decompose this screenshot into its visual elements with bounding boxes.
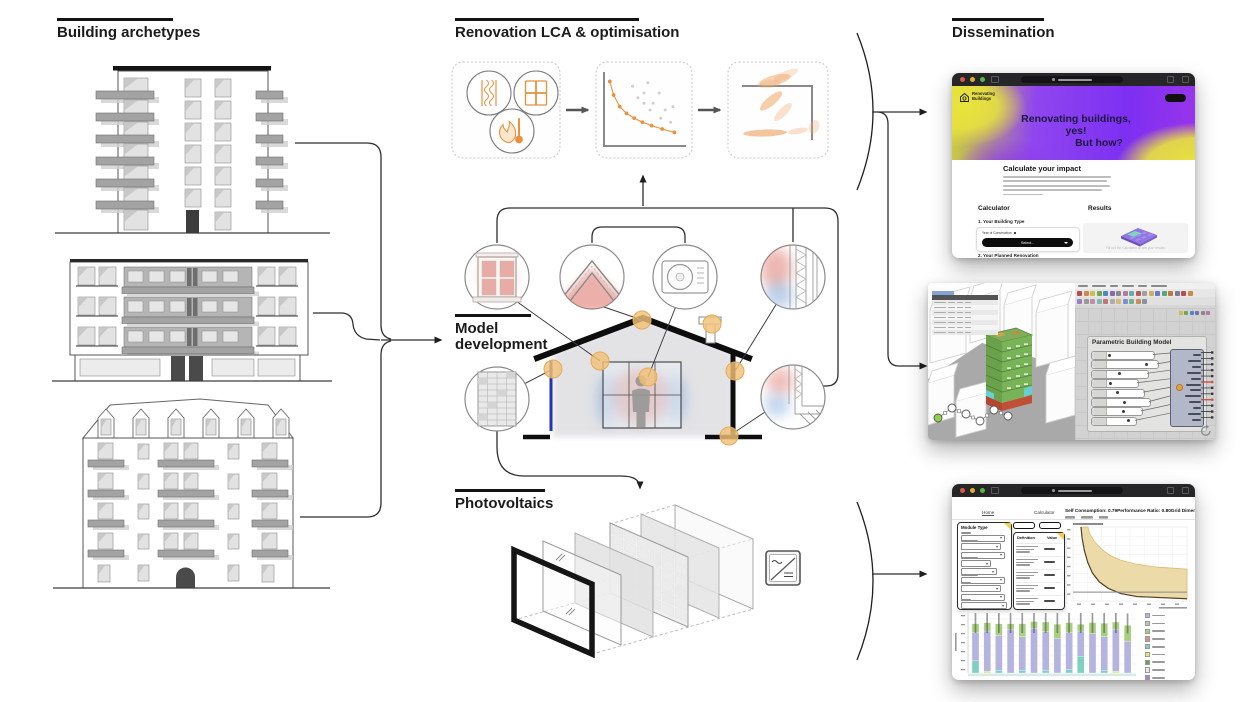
toolbar-icon[interactable] xyxy=(1168,291,1173,296)
close-button[interactable] xyxy=(960,77,965,82)
lca-stacked-bar-chart[interactable] xyxy=(954,609,1144,680)
toolbar-icon[interactable] xyxy=(1149,291,1154,296)
tab-home[interactable]: Home xyxy=(982,510,994,516)
results-placeholder-text: Fill out the Calculator to see your resu… xyxy=(1087,246,1184,250)
toolbar-icon[interactable] xyxy=(1103,291,1108,296)
dashboard-button-1[interactable] xyxy=(1013,522,1035,529)
legend-item[interactable] xyxy=(1145,652,1165,657)
toolbar-icon[interactable] xyxy=(1116,299,1121,304)
legend-item[interactable] xyxy=(1145,621,1165,626)
canvas-icon[interactable] xyxy=(1206,311,1210,315)
toolbar-icon[interactable] xyxy=(1077,291,1082,296)
module-type-title: Module Type xyxy=(961,525,988,530)
bar-segment-lavender[interactable] xyxy=(972,633,979,661)
heading-text: Model development xyxy=(455,321,547,355)
bar-segment-lavender[interactable] xyxy=(1077,631,1084,656)
step-1-label: 1. Your Building Type xyxy=(978,219,1024,224)
bar-segment-teal[interactable] xyxy=(1019,670,1026,673)
legend-item[interactable] xyxy=(1145,644,1165,649)
bar-segment-lavender[interactable] xyxy=(1089,634,1096,673)
bar-segment-lavender[interactable] xyxy=(1066,633,1073,670)
bar-segment-lavender[interactable] xyxy=(1031,628,1038,673)
toolbar-icon[interactable] xyxy=(1142,299,1147,304)
toolbar-icon[interactable] xyxy=(1129,299,1134,304)
gh-number-slider[interactable] xyxy=(1091,407,1143,416)
grasshopper-canvas[interactable]: Parametric Building Model xyxy=(1075,308,1215,440)
header-menu-button[interactable] xyxy=(1165,94,1186,102)
toolbar-icon[interactable] xyxy=(1084,291,1089,296)
form-field[interactable] xyxy=(961,599,1007,609)
heading-overline xyxy=(455,18,639,21)
rhino-grasshopper-screenshot: Parametric Building Model xyxy=(928,283,1215,440)
gh-number-slider[interactable] xyxy=(1091,389,1145,398)
table-row xyxy=(1016,582,1062,596)
canvas-icon[interactable] xyxy=(1179,311,1183,315)
heading-overline xyxy=(455,489,545,492)
bar-segment-lavender[interactable] xyxy=(1019,637,1026,671)
toolbar-icon[interactable] xyxy=(1123,291,1128,296)
toolbar-icon[interactable] xyxy=(1129,291,1134,296)
site-logo[interactable]: Renovating Buildings xyxy=(959,92,998,103)
toolbar-icon[interactable] xyxy=(1136,291,1141,296)
browser-titlebar xyxy=(952,73,1195,86)
tab-divider xyxy=(952,519,1195,520)
grasshopper-toolbar[interactable] xyxy=(1075,289,1215,297)
toolbar-icon[interactable] xyxy=(1090,291,1095,296)
canvas-icon[interactable] xyxy=(1195,311,1199,315)
share-icon[interactable] xyxy=(1167,76,1174,83)
gh-number-slider[interactable] xyxy=(1091,379,1139,388)
toolbar-icon[interactable] xyxy=(1084,299,1089,304)
building-type-card: Year of Construction Select... xyxy=(976,227,1080,252)
legend-item[interactable] xyxy=(1145,629,1165,634)
bar-segment-lavender[interactable] xyxy=(995,635,1002,670)
wall-insulation-callout xyxy=(760,245,825,309)
metric-links[interactable] xyxy=(1065,516,1108,519)
gh-group-title: Parametric Building Model xyxy=(1092,339,1171,346)
building-slab-block xyxy=(52,259,332,381)
toolbar-icon[interactable] xyxy=(1155,291,1160,296)
heading-overline xyxy=(455,314,531,317)
wall-base-callout xyxy=(761,365,826,429)
bar-segment-yellow[interactable] xyxy=(984,671,991,673)
zoom-button[interactable] xyxy=(980,488,985,493)
hero-title: Renovating buildings, yes! But how? xyxy=(992,113,1160,150)
bar-segment-yellow[interactable] xyxy=(1112,671,1119,673)
select-button[interactable]: Select... xyxy=(982,238,1073,247)
gh-group-parametric-building-model[interactable]: Parametric Building Model xyxy=(1087,336,1207,432)
toolbar-icon[interactable] xyxy=(1136,299,1141,304)
toolbar-icon[interactable] xyxy=(1090,299,1095,304)
new-tab-icon[interactable] xyxy=(1182,487,1189,494)
metric-grid-dimensions: Grid Dimensions: 0.28 xyxy=(1171,508,1195,513)
grasshopper-window: Parametric Building Model xyxy=(1075,283,1215,440)
toolbar-icon[interactable] xyxy=(1162,291,1167,296)
gh-component-icon xyxy=(1176,384,1183,391)
optimisation-box xyxy=(596,62,692,158)
tab-calculator[interactable]: Calculator xyxy=(1034,510,1055,515)
corner-badge xyxy=(1004,523,1011,530)
section-title-dissemination: Dissemination xyxy=(952,18,1055,41)
table-row xyxy=(1016,556,1062,570)
gh-number-slider[interactable] xyxy=(1091,417,1137,426)
zoom-button[interactable] xyxy=(980,77,985,82)
info-dot-icon[interactable] xyxy=(1014,232,1017,235)
toolbar-icon[interactable] xyxy=(1188,291,1193,296)
building-tower xyxy=(55,66,330,233)
heading-text: Photovoltaics xyxy=(455,496,553,513)
measures-box xyxy=(452,62,560,158)
gh-number-slider[interactable] xyxy=(1091,351,1155,360)
table-row xyxy=(1016,595,1062,609)
url-text xyxy=(1058,490,1092,492)
metric-performance-ratio: Performance Ratio: 0.80 xyxy=(1117,508,1171,513)
col-header-value: Value xyxy=(1047,535,1057,540)
toolbar-icon[interactable] xyxy=(1097,299,1102,304)
chevron-down-icon xyxy=(1064,242,1068,244)
pv-dashboard-screenshot: Home Calculator Module Type Definition V… xyxy=(952,484,1195,680)
hero-line-2: yes! xyxy=(992,125,1160,137)
canvas-icon[interactable] xyxy=(1201,311,1205,315)
table-row xyxy=(1016,569,1062,583)
gh-component[interactable] xyxy=(1170,349,1204,427)
toolbar-icon[interactable] xyxy=(1110,299,1115,304)
year-of-construction-label: Year of Construction xyxy=(982,231,1016,235)
roof-insulation-callout xyxy=(558,245,626,312)
site-logo-text: Renovating Buildings xyxy=(972,92,998,102)
toolbar-icon[interactable] xyxy=(1175,291,1180,296)
gh-number-slider[interactable] xyxy=(1091,360,1159,369)
renovation-lca-row xyxy=(452,62,828,158)
calculator-heading: Calculator xyxy=(978,205,1010,212)
close-button[interactable] xyxy=(960,488,965,493)
section-title-photovoltaics: Photovoltaics xyxy=(455,489,553,512)
bar-segment-lavender[interactable] xyxy=(984,631,991,671)
address-bar[interactable] xyxy=(1021,487,1123,494)
bar-segment-teal[interactable] xyxy=(972,661,979,673)
section-title-model-development: Model development xyxy=(455,314,547,354)
new-tab-icon[interactable] xyxy=(1182,76,1189,83)
table-row xyxy=(1016,543,1062,557)
bar-segment-lavender[interactable] xyxy=(1042,632,1049,671)
toolbar-icon[interactable] xyxy=(1077,299,1082,304)
distribution-box xyxy=(728,62,828,158)
toolbar-icon[interactable] xyxy=(1181,291,1186,296)
dashboard-body: Home Calculator Module Type Definition V… xyxy=(952,497,1195,680)
heat-pump-callout xyxy=(653,245,717,309)
section-title-building-archetypes: Building archetypes xyxy=(57,18,200,41)
heading-overline xyxy=(952,18,1044,21)
building-archetypes-illustration xyxy=(52,66,332,588)
canvas-zoom-widget-icon[interactable] xyxy=(1199,424,1213,438)
heading-text: Building archetypes xyxy=(57,25,200,42)
sidebar-icon[interactable] xyxy=(991,487,999,494)
canvas-icon[interactable] xyxy=(1190,311,1194,315)
dashboard-button-2[interactable] xyxy=(1039,522,1061,529)
canvas-widget-icons[interactable] xyxy=(1179,311,1211,315)
hero-line-3: But how? xyxy=(992,137,1160,149)
bar-segment-teal[interactable] xyxy=(995,670,1002,673)
share-icon[interactable] xyxy=(1167,487,1174,494)
bar-segment-teal[interactable] xyxy=(1101,670,1108,673)
module-type-card: Module Type xyxy=(957,522,1012,610)
bar-segment-lavender[interactable] xyxy=(1112,629,1119,671)
facade-pv-callout xyxy=(465,367,529,431)
minimize-button[interactable] xyxy=(970,488,975,493)
bar-segment-teal[interactable] xyxy=(1077,656,1084,673)
gh-number-slider[interactable] xyxy=(1091,370,1149,379)
inverter-icon xyxy=(766,551,800,585)
website-content: Calculate your impact Calculator Results… xyxy=(952,160,1195,258)
section-title-renovation-lca: Renovation LCA & optimisation xyxy=(455,18,679,41)
building-heritage xyxy=(53,399,330,588)
website-screenshot: Renovating Buildings Renovating building… xyxy=(952,73,1195,258)
heading-text: Renovation LCA & optimisation xyxy=(455,25,679,42)
impact-heading: Calculate your impact xyxy=(1003,164,1081,173)
rhino-stats-panel xyxy=(932,291,998,335)
definition-value-table: Definition Value xyxy=(1013,532,1065,610)
hero-line-1: Renovating buildings, xyxy=(992,113,1160,125)
toolbar-icon[interactable] xyxy=(1103,299,1108,304)
bar-segment-teal[interactable] xyxy=(1042,671,1049,673)
legend-item[interactable] xyxy=(1145,660,1165,665)
bar-segment-lavender[interactable] xyxy=(1054,638,1061,673)
toolbar-icon[interactable] xyxy=(1110,291,1115,296)
legend-item[interactable] xyxy=(1145,613,1165,618)
toolbar-icon[interactable] xyxy=(1123,299,1128,304)
self-consumption-chart[interactable] xyxy=(1063,523,1193,609)
house-logo-icon xyxy=(959,92,970,103)
bar-segment-lavender[interactable] xyxy=(1007,629,1014,673)
browser-titlebar xyxy=(952,484,1195,497)
calculator-illustration xyxy=(1083,225,1188,247)
results-heading: Results xyxy=(1088,205,1111,212)
grasshopper-toolbar-2[interactable] xyxy=(1075,297,1215,305)
toolbar-icon[interactable] xyxy=(1142,291,1147,296)
canvas-icon[interactable] xyxy=(1184,311,1188,315)
col-header-definition: Definition xyxy=(1017,535,1035,540)
results-panel: Fill out the Calculator to see your resu… xyxy=(1083,223,1188,253)
lock-icon xyxy=(1052,78,1055,81)
intro-paragraph xyxy=(1003,176,1113,198)
url-text xyxy=(1058,79,1092,81)
minimize-button[interactable] xyxy=(970,77,975,82)
website-hero: Renovating Buildings Renovating building… xyxy=(952,86,1195,160)
legend-item[interactable] xyxy=(1145,636,1165,641)
lock-icon xyxy=(1052,489,1055,492)
pv-module-icon xyxy=(478,372,516,426)
pv-exploded-view xyxy=(514,505,800,654)
heading-text: Dissemination xyxy=(952,25,1055,42)
kpi-metrics-row: Self Consumption: 0.79 Performance Ratio… xyxy=(1065,508,1193,513)
gh-number-slider[interactable] xyxy=(1091,398,1151,407)
step-2-label: 2. Your Planned Renovation xyxy=(978,253,1039,258)
sidebar-icon[interactable] xyxy=(991,76,999,83)
metric-self-consumption: Self Consumption: 0.79 xyxy=(1065,508,1117,513)
legend-item[interactable] xyxy=(1145,667,1165,672)
heading-overline xyxy=(57,18,173,21)
address-bar[interactable] xyxy=(1021,76,1123,83)
toolbar-icon[interactable] xyxy=(1116,291,1121,296)
toolbar-icon[interactable] xyxy=(1097,291,1102,296)
bar-segment-lavender[interactable] xyxy=(1101,637,1108,671)
bar-segment-lavender[interactable] xyxy=(1124,641,1131,673)
window-detail-callout xyxy=(465,245,529,309)
legend-item[interactable] xyxy=(1145,675,1165,680)
bar-segment-teal[interactable] xyxy=(1066,670,1073,673)
research-overview-figure: { "sections": { "building_archetypes": {… xyxy=(0,0,1254,702)
chart-legend xyxy=(1145,613,1165,680)
